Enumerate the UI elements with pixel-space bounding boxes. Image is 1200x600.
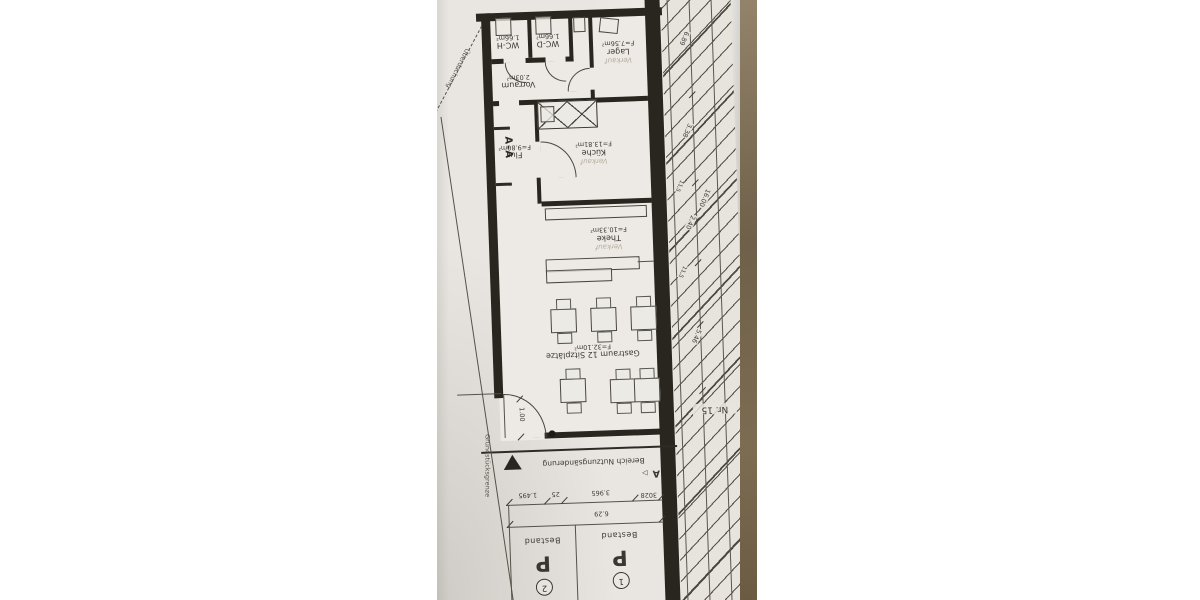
room-label-wcd: WC-D 1.66m² xyxy=(529,31,568,49)
stall2-p: P xyxy=(531,550,556,576)
room-label-theke: Verkauf Theke F=10.33m² xyxy=(580,224,637,251)
theke-counter-bar xyxy=(546,268,612,283)
table xyxy=(590,307,617,332)
usage-boundary-line xyxy=(481,445,677,454)
chair xyxy=(617,403,632,415)
stall2-status: Bestand xyxy=(516,535,568,546)
boundary-triangle-marker xyxy=(503,454,522,470)
shaft-cell xyxy=(567,101,597,128)
dimension-line xyxy=(507,521,664,528)
lager-window xyxy=(599,17,619,34)
chair xyxy=(615,369,630,381)
canopy-label: Überdachung xyxy=(437,24,483,113)
stall1-p: P xyxy=(608,545,633,571)
kitchen-fixture xyxy=(540,106,555,122)
section-marker-a: A ▷ xyxy=(638,465,665,485)
section-marker-aa: A-A xyxy=(499,128,514,168)
section-arrow-icon: ▷ xyxy=(642,469,648,477)
table xyxy=(630,306,657,331)
wall-flur-kueche-lower xyxy=(537,178,542,204)
dimension-25: 25 xyxy=(547,490,565,499)
chair xyxy=(596,297,611,309)
chair xyxy=(556,299,571,311)
chair xyxy=(565,368,580,380)
room-label-lager: Verkauf Lager F=7.56m² xyxy=(594,38,643,65)
door-width-dim: 1.00 xyxy=(517,402,526,426)
stall2-number: 2 xyxy=(536,578,554,596)
dimension-3028: 3028 xyxy=(635,491,663,500)
sink-fixture xyxy=(573,17,586,32)
section-letter: A xyxy=(652,467,660,478)
chair xyxy=(639,368,654,380)
dimension-chain-line xyxy=(688,0,711,600)
dimension-3-965: 3.965 xyxy=(581,488,621,497)
dimension-11-5b: 11,5 xyxy=(677,264,688,279)
dimension-1-495: 1.495 xyxy=(513,491,543,500)
photo-of-floorplan: 6.89 3.38 11,5 16.00 2.40 11,5 5.46 Nr. … xyxy=(0,0,1200,600)
table xyxy=(610,378,637,403)
room-label-wch: WC-H 1.66m² xyxy=(489,32,528,50)
table xyxy=(634,378,661,403)
dimension-6-29: 6.29 xyxy=(581,509,621,518)
stall1-number: 1 xyxy=(612,572,630,590)
wall-wc-segment xyxy=(491,59,503,64)
stall1-status: Bestand xyxy=(593,529,645,540)
desk-edge xyxy=(740,0,757,600)
dimension-chain-line xyxy=(710,0,733,600)
floorplan-drawing: 6.89 3.38 11,5 16.00 2.40 11,5 5.46 Nr. … xyxy=(437,0,740,600)
property-line-label: Grundstücksgrenze xyxy=(484,412,492,520)
dimension-16-00: 16.00 xyxy=(697,187,712,209)
paper-sheet: 6.89 3.38 11,5 16.00 2.40 11,5 5.46 Nr. … xyxy=(437,0,740,600)
table xyxy=(550,308,577,333)
dimension-line xyxy=(506,500,663,507)
wall-h1-segment xyxy=(493,101,499,106)
room-label-vorraum: Vorraum 2.03m² xyxy=(494,71,543,90)
chair xyxy=(641,402,656,414)
room-label-kueche: Verkauf Küche F=13.81m² xyxy=(565,139,622,166)
chair xyxy=(636,296,651,308)
stall-divider xyxy=(575,525,579,600)
chair xyxy=(567,402,582,414)
table xyxy=(560,378,587,403)
wall-wc-segment xyxy=(525,57,545,62)
neighbor-house-number: Nr. 15 xyxy=(693,403,737,415)
dimension-11-5: 11,5 xyxy=(674,178,685,193)
